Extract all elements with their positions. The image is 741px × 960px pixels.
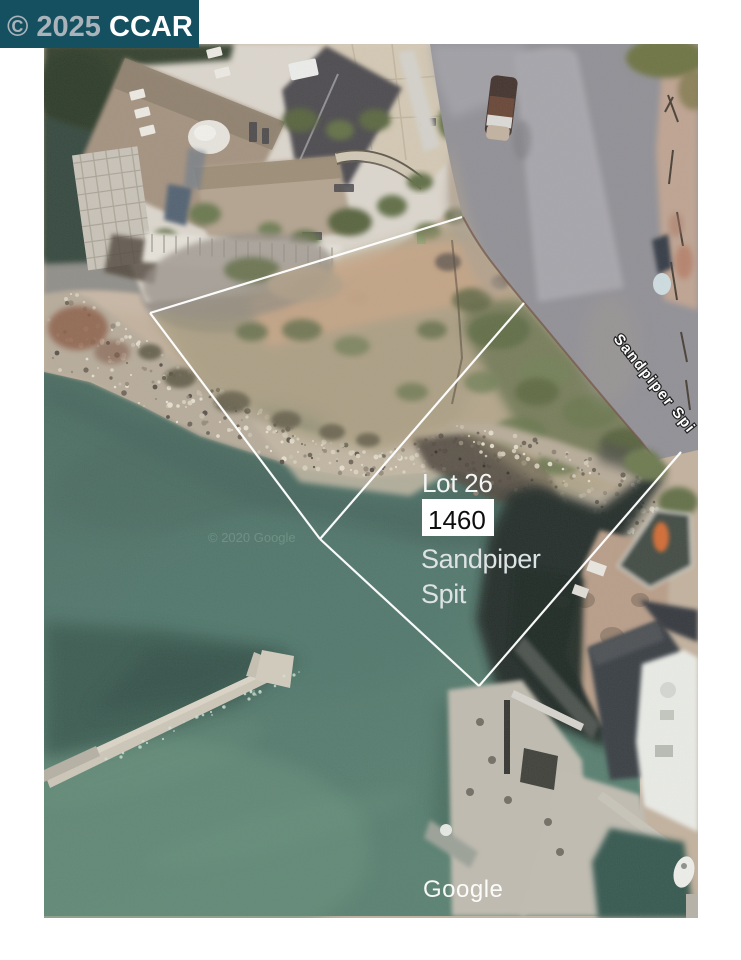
svg-text:Lot 26: Lot 26 xyxy=(422,468,493,498)
svg-text:1460: 1460 xyxy=(428,505,486,535)
svg-text:© 2025 CCAR: © 2025 CCAR xyxy=(7,11,193,43)
svg-text:Sandpiper: Sandpiper xyxy=(421,544,541,574)
svg-text:Google: Google xyxy=(423,876,503,903)
svg-text:Spit: Spit xyxy=(421,579,467,609)
